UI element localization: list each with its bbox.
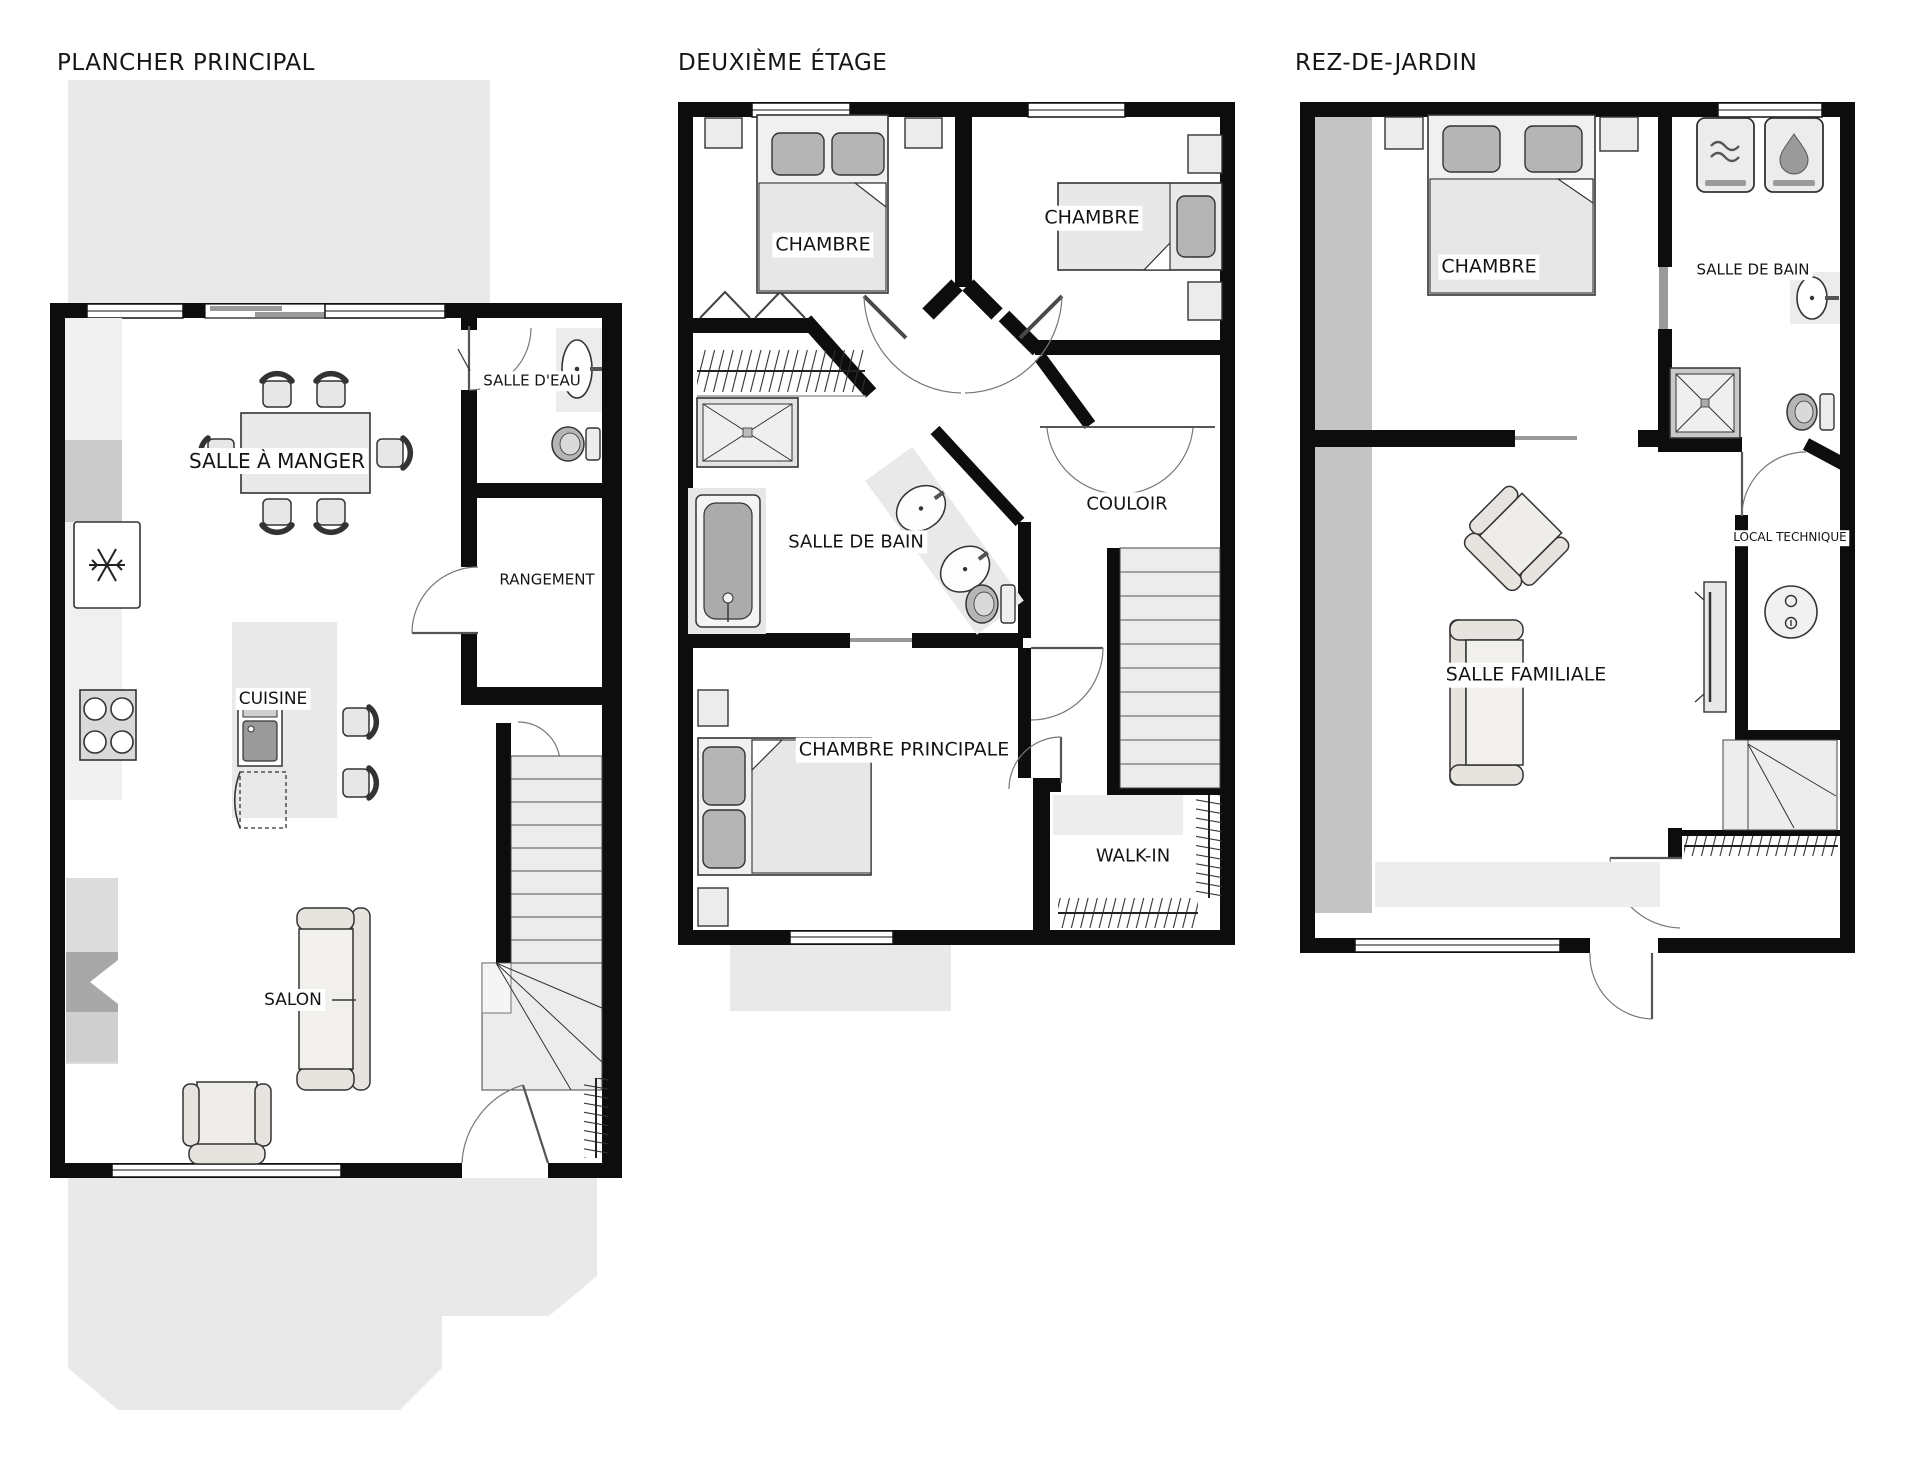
double-bed (757, 115, 888, 293)
plan-title-plancher-principal: PLANCHER PRINCIPAL (57, 50, 315, 76)
room-label-local-technique: LOCAL TECHNIQUE (1730, 530, 1849, 546)
room-label-walk-in: WALK-IN (1093, 844, 1173, 867)
couloir-closet (1040, 427, 1215, 494)
armchair (183, 1082, 271, 1164)
door-leaf (864, 296, 906, 338)
toilet (966, 585, 1015, 623)
under-stair-storage (1723, 740, 1837, 830)
room-label-salon: SALON (261, 989, 325, 1011)
toilet (1787, 394, 1834, 430)
door-leaf (523, 1085, 548, 1163)
door-swing (412, 567, 478, 633)
wall-tv (1695, 582, 1726, 712)
door-swing (1590, 953, 1652, 1019)
room-label-rangement: RANGEMENT (496, 570, 597, 590)
island-stool (343, 768, 376, 798)
pillow (1177, 196, 1215, 257)
dresser (1188, 282, 1222, 320)
room-label-cuisine: CUISINE (236, 688, 311, 710)
dryer (1765, 118, 1823, 192)
plan-plancher-principal (50, 80, 622, 1410)
basin-icon (243, 721, 277, 761)
shower (1670, 368, 1740, 438)
dining-chair (262, 374, 292, 407)
island-stool (343, 707, 376, 737)
door-swing (1122, 428, 1193, 494)
pillow (772, 133, 824, 175)
shower (697, 398, 798, 467)
nightstand (1600, 117, 1638, 151)
pillow (1443, 126, 1500, 172)
room-label-couloir: COULOIR (1083, 492, 1170, 515)
door-swing (518, 722, 560, 761)
salle-deau (458, 318, 622, 498)
balcony (730, 945, 951, 1011)
dining-chair (316, 374, 346, 407)
dining-chair (316, 499, 346, 532)
nightstand (905, 118, 942, 148)
bifold-door (755, 292, 805, 318)
floor-plan-sheet: PLANCHER PRINCIPAL DEUXIÈME ÉTAGE REZ-DE… (0, 0, 1920, 1483)
room-label-chambre-1: CHAMBRE (772, 233, 873, 258)
closet (1684, 836, 1838, 856)
pillow (703, 810, 745, 868)
fridge (74, 522, 140, 608)
toilet (552, 427, 600, 461)
pillow (703, 747, 745, 805)
coat-closet (584, 1078, 608, 1158)
plan-rez-de-jardin (1300, 102, 1855, 1019)
room-label-chambre-principale: CHAMBRE PRINCIPALE (796, 738, 1012, 763)
washer (1697, 118, 1754, 192)
room-label-chambre-rdj: CHAMBRE (1438, 255, 1539, 280)
pillow (832, 133, 884, 175)
pillow (1525, 126, 1582, 172)
room-label-salle-a-manger: SALLE À MANGER (186, 448, 368, 474)
sofa (1450, 620, 1523, 785)
cooktop (80, 690, 136, 760)
dresser (1188, 135, 1222, 173)
room-label-salle-de-bain-rdj: SALLE DE BAIN (1693, 260, 1812, 280)
plan-deuxieme-etage (678, 102, 1235, 1011)
nightstand (705, 118, 742, 148)
door-swing (462, 1085, 523, 1163)
door-swing (1031, 648, 1103, 720)
armchair (1456, 482, 1573, 599)
stair-winder (482, 963, 602, 1090)
sliding-door-panel (210, 306, 282, 311)
water-heater (1765, 586, 1817, 638)
room-label-salle-de-bain-2e: SALLE DE BAIN (785, 530, 927, 553)
room-label-chambre-2: CHAMBRE (1041, 206, 1142, 231)
bathroom-sink (1790, 272, 1840, 324)
floor-mat (1375, 862, 1660, 907)
staircase (1120, 548, 1220, 788)
entry (462, 1078, 608, 1163)
dining-chair (377, 438, 410, 468)
nightstand (1385, 117, 1423, 149)
pocket-door (1659, 267, 1668, 329)
door-swing (1742, 452, 1806, 516)
bathtub (688, 488, 766, 634)
fireplace (66, 878, 118, 1064)
bifold-door (700, 292, 750, 318)
room-label-salle-familiale: SALLE FAMILIALE (1443, 663, 1610, 688)
staircase (482, 722, 602, 1090)
party-wall (1315, 117, 1372, 913)
kitchen-island (232, 622, 376, 828)
door-leaf (1020, 296, 1062, 338)
nightstand (698, 690, 728, 726)
terrace-top (68, 80, 490, 305)
dining-chair (262, 499, 292, 532)
closet-chambre1 (693, 292, 866, 396)
door-swing (1047, 428, 1118, 494)
room-label-salle-deau: SALLE D'EAU (480, 371, 583, 391)
rangement-room (412, 498, 622, 705)
terrace-bottom (68, 1178, 597, 1410)
plan-title-deuxieme-etage: DEUXIÈME ÉTAGE (678, 50, 887, 76)
nightstand (698, 888, 728, 926)
plan-title-rez-de-jardin: REZ-DE-JARDIN (1295, 50, 1477, 76)
